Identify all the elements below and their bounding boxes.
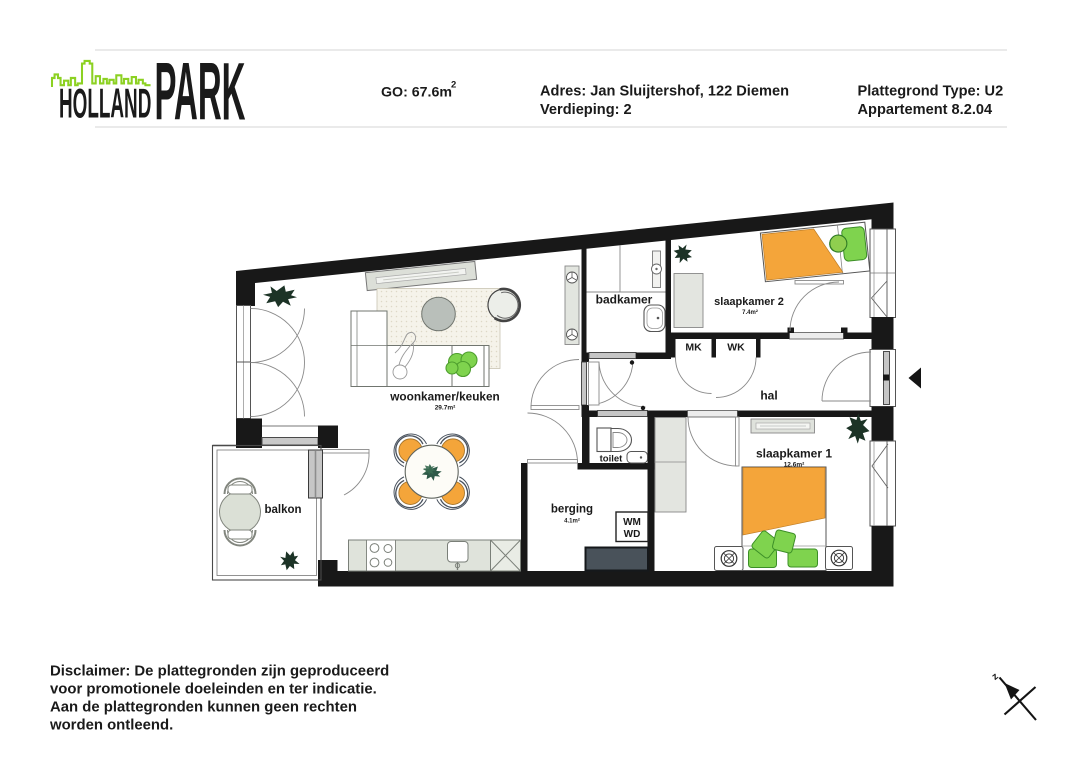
svg-text:7.4m²: 7.4m² bbox=[742, 309, 758, 316]
svg-text:badkamer: badkamer bbox=[596, 293, 653, 307]
svg-text:2: 2 bbox=[451, 80, 456, 91]
svg-text:Adres: Jan Sluijtershof, 122 D: Adres: Jan Sluijtershof, 122 Diemen bbox=[540, 84, 789, 100]
svg-text:hal: hal bbox=[760, 389, 777, 403]
svg-text:worden ontleend.: worden ontleend. bbox=[49, 718, 173, 734]
svg-text:WM: WM bbox=[623, 517, 641, 528]
svg-text:29.7m²: 29.7m² bbox=[435, 405, 456, 412]
svg-text:Disclaimer: De plattegronden z: Disclaimer: De plattegronden zijn geprod… bbox=[50, 664, 389, 680]
svg-text:z: z bbox=[990, 671, 1001, 683]
svg-text:Plattegrond Type: U2: Plattegrond Type: U2 bbox=[858, 84, 1004, 100]
svg-text:voor promotionele doeleinden e: voor promotionele doeleinden en ter indi… bbox=[50, 682, 377, 698]
svg-text:4.1m²: 4.1m² bbox=[564, 518, 580, 525]
svg-text:toilet: toilet bbox=[600, 454, 624, 465]
svg-text:balkon: balkon bbox=[264, 504, 301, 516]
svg-text:GO: 67.6m: GO: 67.6m bbox=[381, 85, 452, 101]
svg-text:MK: MK bbox=[685, 342, 702, 354]
svg-text:PARK: PARK bbox=[155, 46, 246, 138]
svg-text:HOLLAND: HOLLAND bbox=[59, 80, 151, 126]
svg-text:Aan de plattegronden kunnen ge: Aan de plattegronden kunnen geen rechten bbox=[50, 700, 357, 716]
svg-text:WD: WD bbox=[624, 529, 641, 540]
svg-text:slaapkamer 1: slaapkamer 1 bbox=[756, 447, 832, 461]
svg-text:berging: berging bbox=[551, 504, 593, 516]
svg-text:slaapkamer 2: slaapkamer 2 bbox=[714, 296, 784, 308]
svg-text:woonkamer/keuken: woonkamer/keuken bbox=[389, 390, 500, 404]
svg-text:Appartement 8.2.04: Appartement 8.2.04 bbox=[858, 102, 994, 118]
svg-text:Verdieping: 2: Verdieping: 2 bbox=[540, 102, 632, 118]
svg-text:WK: WK bbox=[727, 342, 745, 354]
